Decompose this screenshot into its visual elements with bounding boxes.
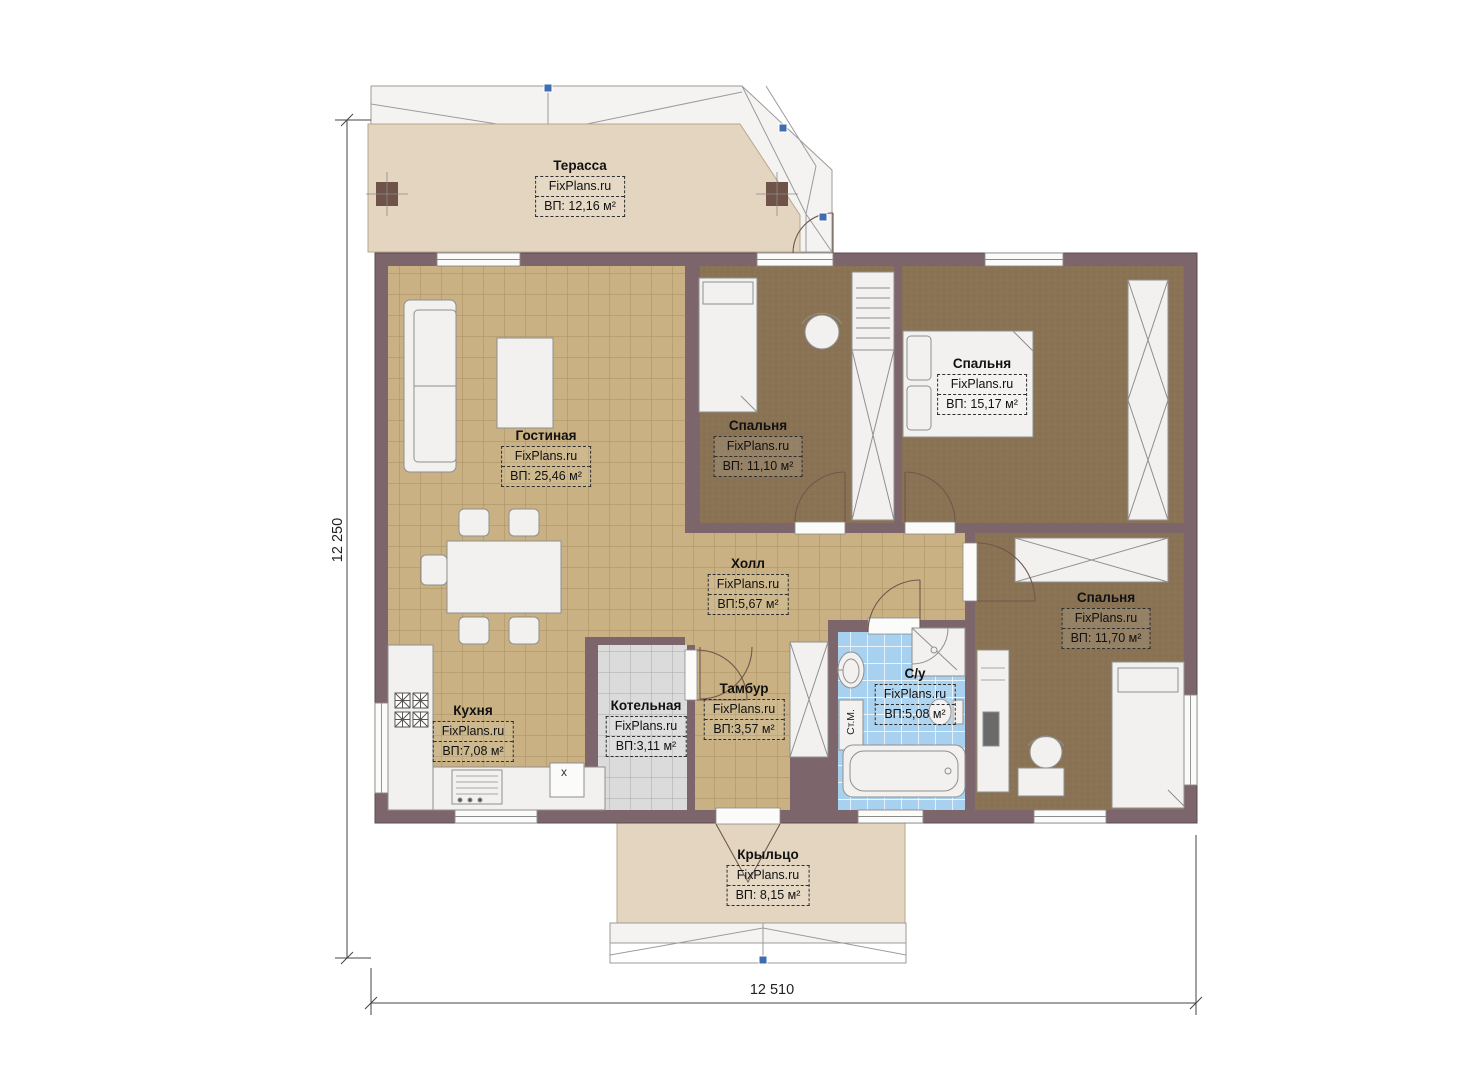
room-area: ВП:3,11 м² [607,737,686,756]
room-area: ВП:3,57 м² [705,720,784,739]
floor-plan-drawing [0,0,1474,1080]
room-label-terrace: Терасса FixPlans.ru ВП: 12,16 м² [535,158,625,217]
room-area: ВП:7,08 м² [434,742,513,761]
room-area: ВП: 8,15 м² [728,886,809,905]
tv-stand-bedroom3 [977,650,1009,792]
room-name: Кухня [433,703,514,719]
room-name: Спальня [937,356,1027,372]
room-label-porch: Крыльцо FixPlans.ru ВП: 8,15 м² [727,847,810,906]
kitchen-hatch-mark: x [552,765,576,779]
room-label-bedroom2: Спальня FixPlans.ru ВП: 15,17 м² [937,356,1027,415]
dimension-left-value: 12 250 [330,505,346,575]
window-bedroom3-right [1184,695,1197,785]
room-label-bedroom1: Спальня FixPlans.ru ВП: 11,10 м² [714,418,803,477]
fixplans-watermark: FixPlans.ru [502,447,590,467]
room-label-bathroom: С/у FixPlans.ru ВП:5,08 м² [875,666,956,725]
fixplans-watermark: FixPlans.ru [715,437,802,457]
fixplans-watermark: FixPlans.ru [434,722,513,742]
room-label-vestibule: Тамбур FixPlans.ru ВП:3,57 м² [704,681,785,740]
room-name: Тамбур [704,681,785,697]
bathtub [843,745,965,797]
dimension-bottom-value: 12 510 [737,982,807,998]
bathroom-sink [838,652,864,688]
room-name: Котельная [606,698,687,714]
fixplans-watermark: FixPlans.ru [938,375,1026,395]
window-bedroom3-bottom [1034,810,1106,823]
fixplans-watermark: FixPlans.ru [536,177,624,197]
grip-marker[interactable] [544,84,552,92]
room-area: ВП:5,08 м² [876,705,955,724]
kitchen-sink [452,770,502,804]
wardrobe-bedroom2 [1128,280,1168,520]
fixplans-watermark: FixPlans.ru [1063,609,1150,629]
grip-marker[interactable] [819,213,827,221]
fixplans-watermark: FixPlans.ru [876,685,955,705]
room-label-boiler: Котельная FixPlans.ru ВП:3,11 м² [606,698,687,757]
room-area: ВП: 11,10 м² [715,457,802,476]
fixplans-watermark: FixPlans.ru [705,700,784,720]
window-bathroom [858,810,923,823]
room-area: ВП: 15,17 м² [938,395,1026,414]
fixplans-watermark: FixPlans.ru [728,866,809,886]
room-area: ВП: 25,46 м² [502,467,590,486]
grip-marker[interactable] [759,956,767,964]
room-name: Спальня [714,418,803,434]
window-kitchen-bottom [455,810,537,823]
grip-marker[interactable] [779,124,787,132]
room-name: Спальня [1062,590,1151,606]
coffee-table [497,338,553,428]
fixplans-watermark: FixPlans.ru [709,575,788,595]
room-name: Гостиная [501,428,591,444]
room-name: Терасса [535,158,625,174]
wardrobe-bedroom3 [1015,538,1168,582]
room-name: С/у [875,666,956,682]
room-area: ВП: 11,70 м² [1063,629,1150,648]
window-bedroom1-terrace [757,253,833,266]
room-label-kitchen: Кухня FixPlans.ru ВП:7,08 м² [433,703,514,762]
window-kitchen-left [375,703,388,793]
room-label-hall: Холл FixPlans.ru ВП:5,67 м² [708,556,789,615]
desk-bedroom3 [1018,768,1064,796]
bed-bedroom1 [699,278,757,412]
floor-plan-page: Терасса FixPlans.ru ВП: 12,16 м² Гостина… [0,0,1474,1080]
washing-machine-label: Ст.М. [845,702,857,742]
wardrobe-vestibule [790,642,828,757]
window-bedroom2 [985,253,1063,266]
wardrobe-between-bedrooms [852,272,894,520]
window-living [437,253,520,266]
room-label-living: Гостиная FixPlans.ru ВП: 25,46 м² [501,428,591,487]
sofa [404,300,456,472]
fixplans-watermark: FixPlans.ru [607,717,686,737]
room-area: ВП: 12,16 м² [536,197,624,216]
room-name: Холл [708,556,789,572]
room-label-bedroom3: Спальня FixPlans.ru ВП: 11,70 м² [1062,590,1151,649]
room-name: Крыльцо [727,847,810,863]
room-area: ВП:5,67 м² [709,595,788,614]
bed-bedroom3 [1112,662,1184,808]
